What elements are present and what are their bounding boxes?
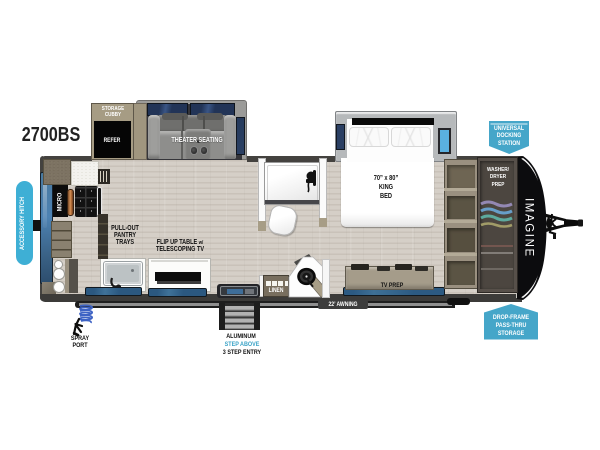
svg-text:IMAGINE: IMAGINE [523,198,535,258]
